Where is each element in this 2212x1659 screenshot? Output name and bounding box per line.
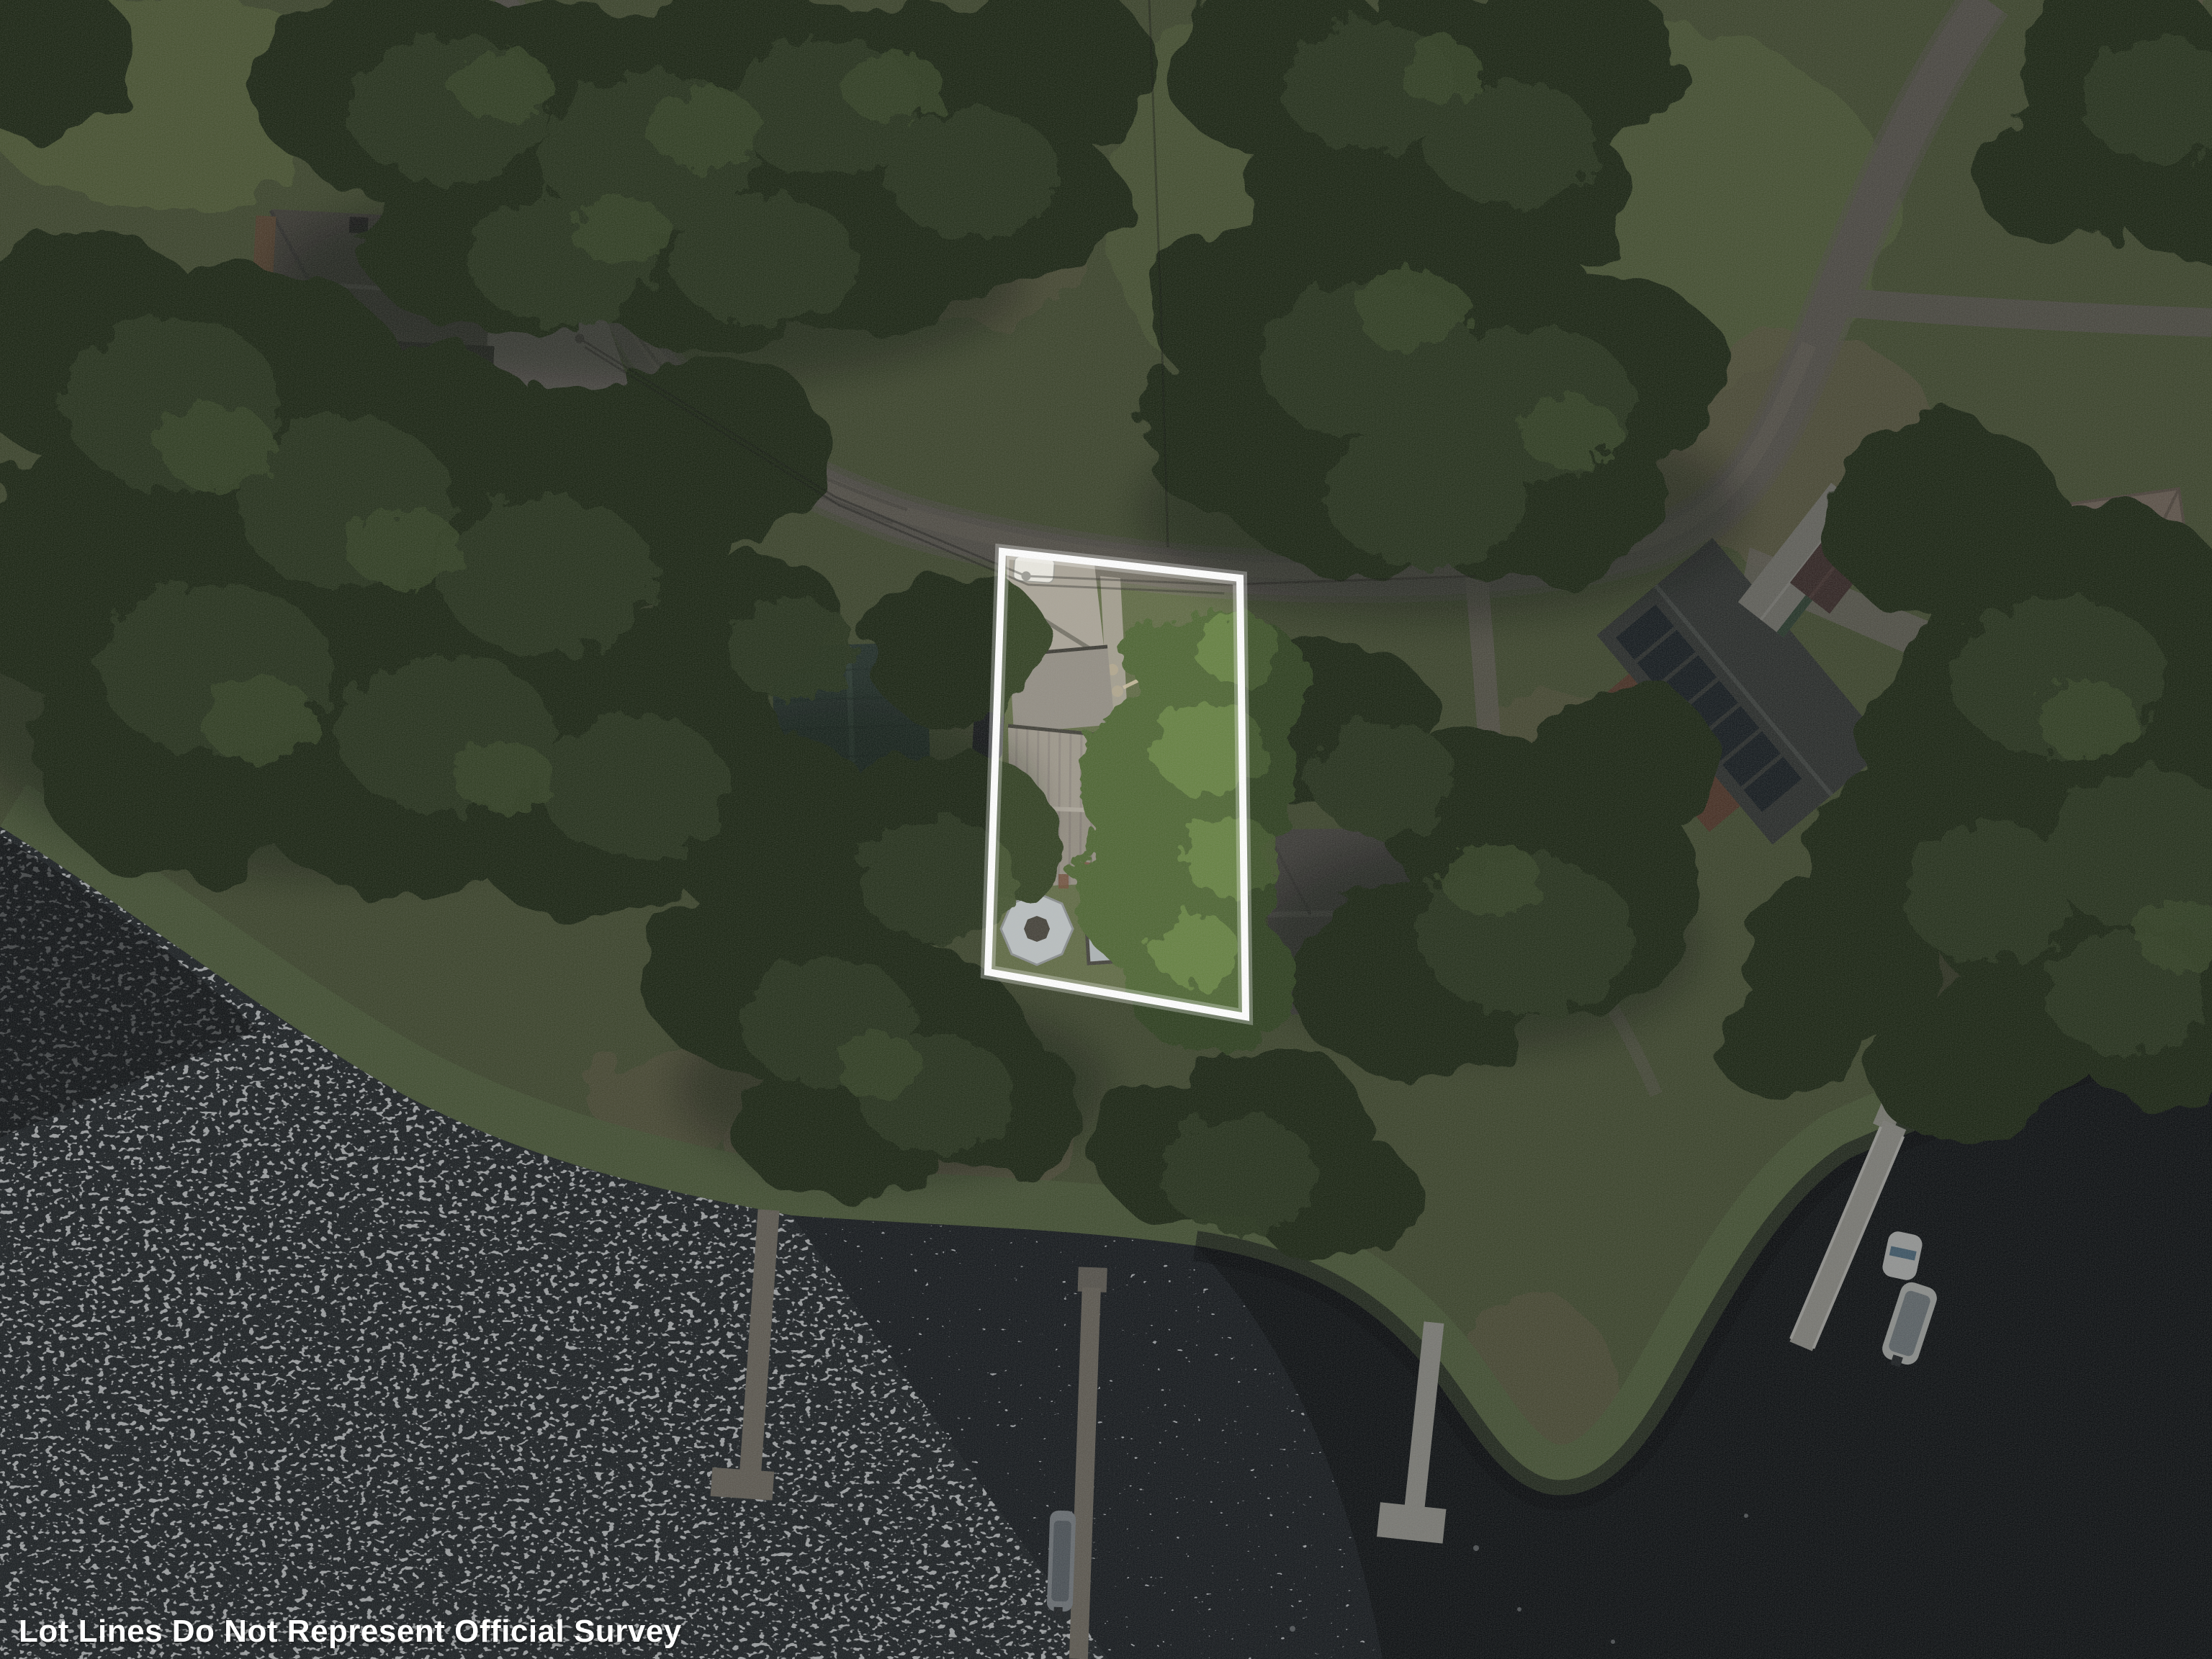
aerial-scene	[0, 0, 2212, 1659]
disclaimer-text: Lot Lines Do Not Represent Official Surv…	[19, 1616, 682, 1647]
film-grain	[0, 0, 2212, 1659]
aerial-photo: Lot Lines Do Not Represent Official Surv…	[0, 0, 2212, 1659]
